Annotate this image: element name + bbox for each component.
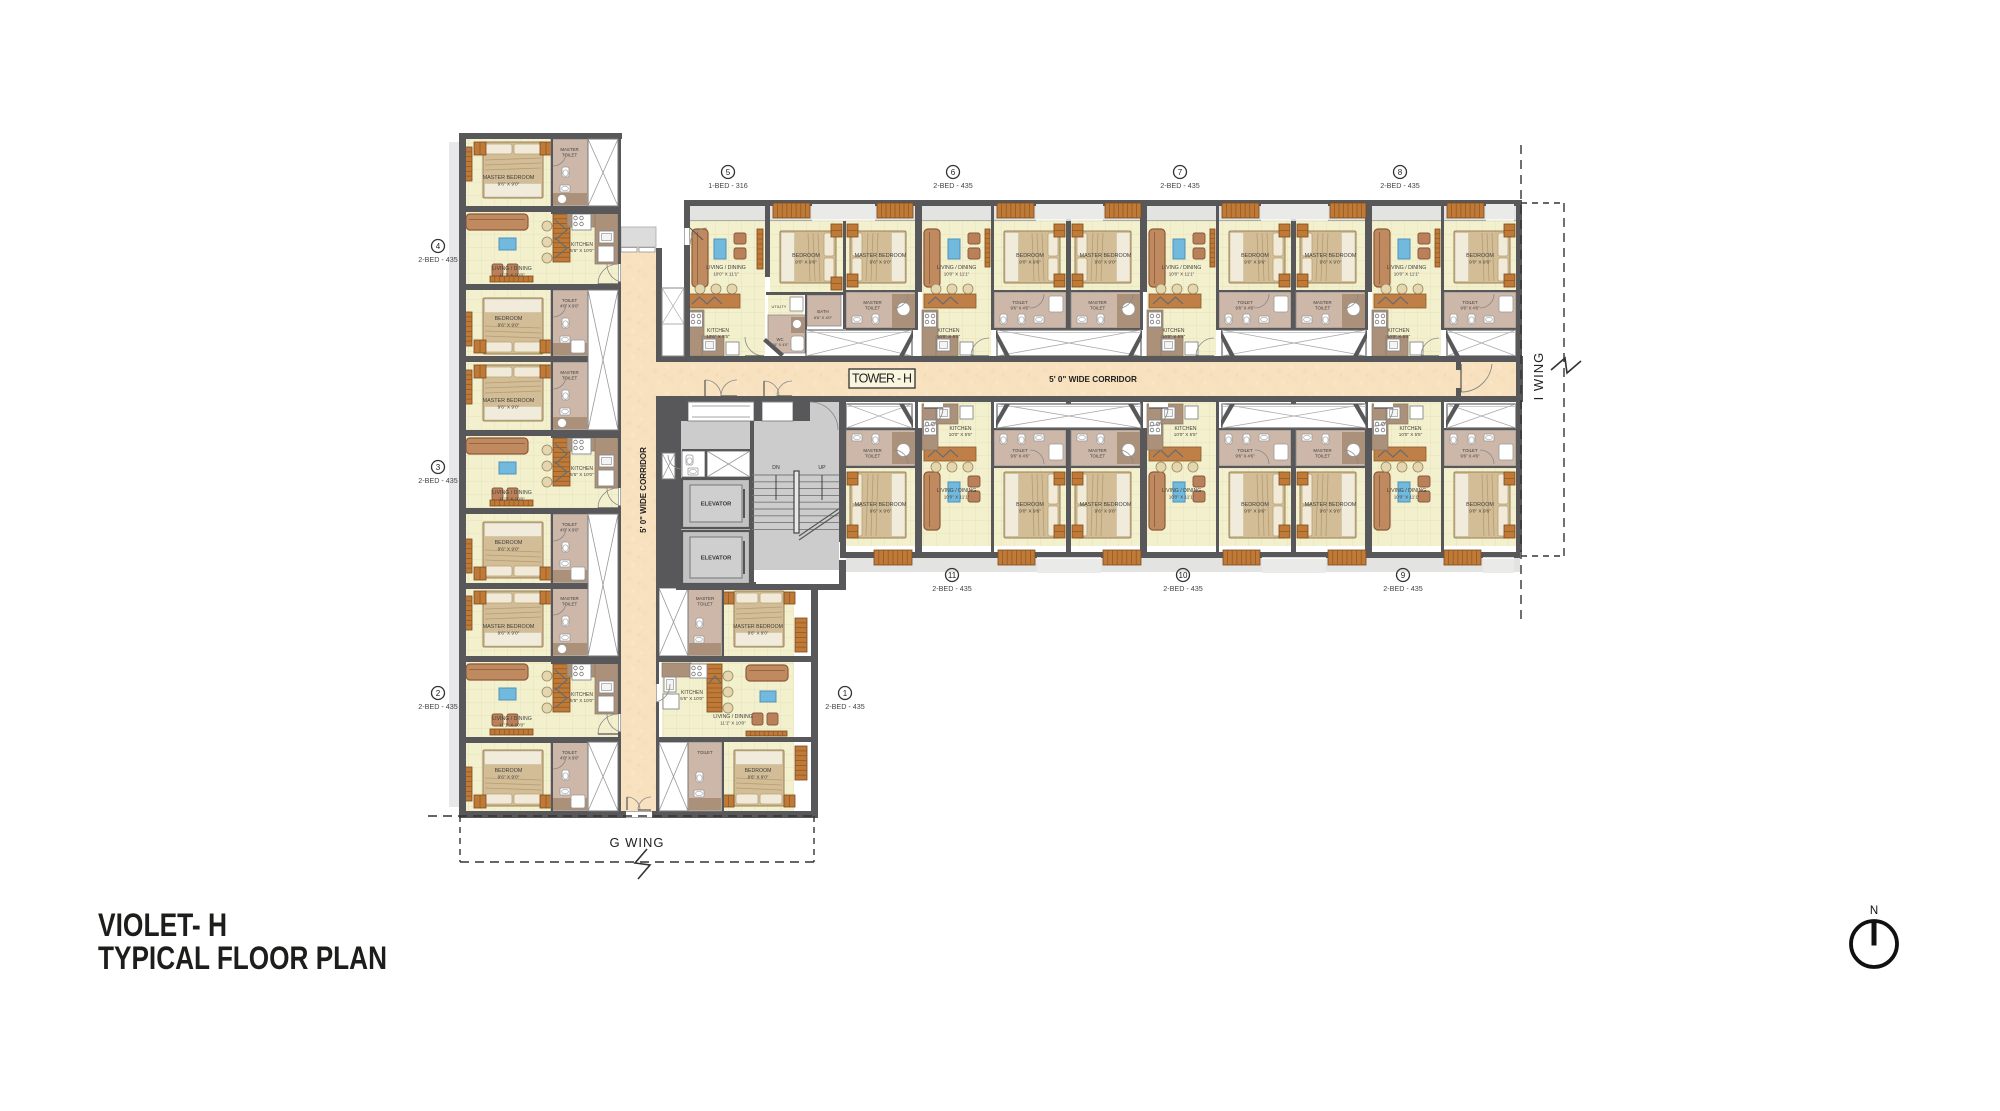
svg-text:TOILET: TOILET — [1462, 300, 1478, 305]
svg-text:10'0" X 11'1": 10'0" X 11'1" — [1169, 272, 1195, 277]
svg-text:BATH: BATH — [817, 309, 828, 314]
svg-text:10'0" X 5'5": 10'0" X 5'5" — [949, 432, 973, 437]
svg-text:9'6" X 9'6": 9'6" X 9'6" — [1320, 509, 1342, 515]
svg-text:9'0" X 9'6": 9'0" X 9'6" — [1244, 260, 1266, 266]
svg-text:9'0" X 9'6": 9'0" X 9'6" — [795, 260, 817, 266]
svg-text:LIVING / DINING: LIVING / DINING — [492, 716, 532, 722]
svg-text:9'0" X 9'6": 9'0" X 9'6" — [1019, 260, 1041, 266]
svg-text:2-BED - 435: 2-BED - 435 — [418, 702, 458, 711]
svg-text:5'5" X 10'0": 5'5" X 10'0" — [570, 472, 594, 477]
svg-text:9'6" X 4'6": 9'6" X 4'6" — [1460, 454, 1480, 459]
svg-text:I WING: I WING — [1531, 352, 1546, 401]
svg-text:TOILET: TOILET — [1237, 300, 1253, 305]
svg-text:BEDROOM: BEDROOM — [1241, 502, 1269, 508]
svg-text:ELEVATOR: ELEVATOR — [701, 502, 732, 508]
svg-text:LIVING / DINING: LIVING / DINING — [713, 714, 753, 720]
svg-text:LIVING / DINING: LIVING / DINING — [937, 488, 977, 494]
svg-text:5'5" X 10'0": 5'5" X 10'0" — [570, 698, 594, 703]
svg-text:9'6" X 4'6": 9'6" X 4'6" — [1010, 454, 1030, 459]
svg-text:2-BED - 435: 2-BED - 435 — [1380, 181, 1420, 190]
svg-text:MASTER BEDROOM: MASTER BEDROOM — [855, 502, 907, 508]
svg-text:9: 9 — [1401, 571, 1406, 580]
svg-text:9'6" X 9'0": 9'6" X 9'0" — [498, 631, 520, 637]
svg-text:MASTER: MASTER — [1088, 300, 1106, 305]
svg-text:TOILET: TOILET — [562, 522, 578, 527]
svg-text:LIVING / DINING: LIVING / DINING — [1387, 265, 1427, 271]
svg-text:BEDROOM: BEDROOM — [1241, 253, 1269, 259]
svg-text:MASTER: MASTER — [863, 300, 881, 305]
svg-text:MASTER BEDROOM: MASTER BEDROOM — [483, 175, 535, 181]
svg-text:2-BED - 435: 2-BED - 435 — [933, 181, 973, 190]
svg-text:TYPICAL FLOOR PLAN: TYPICAL FLOOR PLAN — [98, 940, 387, 976]
svg-text:7: 7 — [1178, 168, 1183, 177]
svg-text:MASTER BEDROOM: MASTER BEDROOM — [1080, 253, 1132, 259]
svg-text:TOILET: TOILET — [562, 750, 578, 755]
svg-text:MASTER: MASTER — [1313, 300, 1331, 305]
svg-text:TOILET: TOILET — [865, 306, 881, 311]
svg-text:9'0" X 9'6": 9'0" X 9'6" — [1469, 260, 1491, 266]
svg-text:10'0" X 5'5": 10'0" X 5'5" — [1399, 432, 1423, 437]
svg-text:TOILET: TOILET — [562, 298, 578, 303]
svg-text:5: 5 — [726, 168, 731, 177]
svg-text:11: 11 — [948, 571, 957, 580]
svg-text:9'6" X 9'0": 9'6" X 9'0" — [748, 631, 769, 636]
svg-text:3: 3 — [436, 463, 441, 472]
svg-text:6: 6 — [951, 168, 956, 177]
svg-text:10'0" X 5'5": 10'0" X 5'5" — [937, 334, 961, 339]
svg-text:9'6" X 9'0": 9'6" X 9'0" — [498, 405, 520, 411]
svg-text:LIVING / DINING: LIVING / DINING — [1162, 488, 1202, 494]
svg-text:TOILET: TOILET — [697, 750, 713, 755]
svg-text:10'0" X 5'5": 10'0" X 5'5" — [1162, 334, 1186, 339]
svg-text:BEDROOM: BEDROOM — [745, 768, 772, 774]
svg-text:2-BED - 435: 2-BED - 435 — [418, 476, 458, 485]
svg-text:UP: UP — [818, 465, 826, 471]
svg-text:VIOLET- H: VIOLET- H — [98, 907, 227, 943]
svg-text:MASTER: MASTER — [1088, 448, 1106, 453]
svg-text:11'1" X 10'0": 11'1" X 10'0" — [499, 497, 525, 502]
svg-text:2-BED - 435: 2-BED - 435 — [932, 584, 972, 593]
svg-text:5'5" X 10'0": 5'5" X 10'0" — [570, 248, 594, 253]
svg-text:2: 2 — [436, 689, 441, 698]
svg-text:TOILET: TOILET — [562, 376, 578, 381]
svg-text:MASTER: MASTER — [863, 448, 881, 453]
svg-text:9'6" X 4'6": 9'6" X 4'6" — [1460, 306, 1480, 311]
svg-text:TOILET: TOILET — [1237, 448, 1253, 453]
svg-text:TOILET: TOILET — [1012, 300, 1028, 305]
svg-text:9'6" X 9'0": 9'6" X 9'0" — [748, 775, 769, 780]
svg-text:9'0" X 9'6": 9'0" X 9'6" — [1469, 509, 1491, 515]
svg-text:9'6" X 9'0": 9'6" X 9'0" — [870, 260, 892, 266]
svg-text:TOWER - H: TOWER - H — [852, 372, 912, 386]
svg-text:5'5" X 10'0": 5'5" X 10'0" — [680, 696, 704, 701]
svg-text:9'6" X 9'0": 9'6" X 9'0" — [498, 775, 520, 781]
svg-text:MASTER BEDROOM: MASTER BEDROOM — [483, 398, 535, 404]
svg-text:9'6" X 9'6": 9'6" X 9'6" — [1095, 509, 1117, 515]
svg-text:BEDROOM: BEDROOM — [1466, 502, 1494, 508]
svg-text:10'0" X 11'1": 10'0" X 11'1" — [944, 272, 970, 277]
svg-text:G WING: G WING — [609, 835, 664, 850]
svg-text:5' 0" WIDE CORRIDOR: 5' 0" WIDE CORRIDOR — [639, 447, 648, 533]
svg-text:10: 10 — [1179, 571, 1188, 580]
svg-text:2-BED - 435: 2-BED - 435 — [418, 255, 458, 264]
svg-text:TOILET: TOILET — [1090, 306, 1106, 311]
svg-text:1: 1 — [843, 689, 848, 698]
svg-text:10'0" X 5'5": 10'0" X 5'5" — [706, 334, 730, 339]
svg-text:10'0" X 11'1": 10'0" X 11'1" — [713, 272, 739, 277]
svg-text:MASTER: MASTER — [560, 147, 578, 152]
svg-text:8: 8 — [1398, 168, 1403, 177]
svg-text:LIVING / DINING: LIVING / DINING — [492, 266, 532, 272]
svg-text:MASTER BEDROOM: MASTER BEDROOM — [855, 253, 907, 259]
svg-text:LIVING / DINING: LIVING / DINING — [492, 490, 532, 496]
svg-text:BEDROOM: BEDROOM — [1466, 253, 1494, 259]
svg-text:BEDROOM: BEDROOM — [495, 768, 523, 774]
svg-text:MASTER: MASTER — [560, 370, 578, 375]
svg-text:TOILET: TOILET — [1315, 454, 1331, 459]
svg-text:TOILET: TOILET — [1012, 448, 1028, 453]
svg-text:9'0" X 9'6": 9'0" X 9'6" — [1019, 509, 1041, 515]
svg-text:MASTER: MASTER — [696, 596, 714, 601]
svg-text:4: 4 — [436, 242, 441, 251]
svg-text:MASTER: MASTER — [560, 596, 578, 601]
svg-text:9'6" X 9'0": 9'6" X 9'0" — [498, 323, 520, 329]
svg-text:4'0" X 9'0": 4'0" X 9'0" — [560, 304, 580, 309]
svg-text:LIVING / DINING: LIVING / DINING — [706, 265, 746, 271]
svg-text:MASTER: MASTER — [1313, 448, 1331, 453]
svg-text:BEDROOM: BEDROOM — [495, 316, 523, 322]
svg-text:LIVING / DINING: LIVING / DINING — [1162, 265, 1202, 271]
svg-text:9'6" X 9'0": 9'6" X 9'0" — [498, 547, 520, 553]
svg-text:TOILET: TOILET — [865, 454, 881, 459]
svg-text:2-BED - 435: 2-BED - 435 — [1163, 584, 1203, 593]
svg-text:2-BED - 435: 2-BED - 435 — [825, 702, 865, 711]
svg-text:BEDROOM: BEDROOM — [792, 253, 820, 259]
svg-text:10'0" X 11'1": 10'0" X 11'1" — [1394, 495, 1420, 500]
svg-text:2-BED - 435: 2-BED - 435 — [1160, 181, 1200, 190]
svg-text:LIVING / DINING: LIVING / DINING — [937, 265, 977, 271]
svg-text:TOILET: TOILET — [1090, 454, 1106, 459]
svg-text:TOILET: TOILET — [562, 602, 578, 607]
svg-text:4'0" X 9'0": 4'0" X 9'0" — [560, 528, 580, 533]
svg-text:WC: WC — [777, 337, 784, 342]
svg-text:9'6" X 4'6": 9'6" X 4'6" — [1010, 306, 1030, 311]
svg-text:11'1" X 10'0": 11'1" X 10'0" — [720, 721, 746, 726]
svg-text:11'1" X 10'0": 11'1" X 10'0" — [499, 273, 525, 278]
svg-text:1-BED - 316: 1-BED - 316 — [708, 181, 748, 190]
svg-text:10'0" X 11'1": 10'0" X 11'1" — [944, 495, 970, 500]
svg-text:MASTER BEDROOM: MASTER BEDROOM — [1305, 502, 1357, 508]
svg-text:ELEVATOR: ELEVATOR — [701, 556, 732, 562]
svg-text:9'6" X 9'0": 9'6" X 9'0" — [1095, 260, 1117, 266]
svg-text:9'6" X 9'0": 9'6" X 9'0" — [1320, 260, 1342, 266]
svg-text:9'6" X 4'6": 9'6" X 4'6" — [1235, 454, 1255, 459]
svg-text:TOILET: TOILET — [562, 153, 578, 158]
svg-text:5' 0" WIDE CORRIDOR: 5' 0" WIDE CORRIDOR — [1049, 375, 1137, 384]
svg-text:MASTER BEDROOM: MASTER BEDROOM — [1305, 253, 1357, 259]
svg-text:6'6" X 4'0": 6'6" X 4'0" — [814, 315, 833, 320]
svg-text:TOILET: TOILET — [1462, 448, 1478, 453]
svg-text:LIVING / DINING: LIVING / DINING — [1387, 488, 1427, 494]
svg-text:BEDROOM: BEDROOM — [1016, 253, 1044, 259]
svg-text:N: N — [1870, 905, 1878, 917]
svg-text:9'0" X 9'6": 9'0" X 9'6" — [1244, 509, 1266, 515]
svg-text:2-BED - 435: 2-BED - 435 — [1383, 584, 1423, 593]
svg-text:MASTER BEDROOM: MASTER BEDROOM — [483, 624, 535, 630]
svg-text:9'6" X 9'6": 9'6" X 9'6" — [870, 509, 892, 515]
svg-text:UTILITY: UTILITY — [772, 304, 787, 309]
svg-text:BEDROOM: BEDROOM — [495, 540, 523, 546]
svg-text:10'0" X 11'1": 10'0" X 11'1" — [1169, 495, 1195, 500]
svg-text:10'0" X 11'1": 10'0" X 11'1" — [1394, 272, 1420, 277]
svg-text:4'0" X 9'0": 4'0" X 9'0" — [560, 756, 580, 761]
svg-text:10'0" X 5'5": 10'0" X 5'5" — [1174, 432, 1198, 437]
svg-text:TOILET: TOILET — [697, 602, 713, 607]
svg-text:MASTER BEDROOM: MASTER BEDROOM — [733, 624, 783, 630]
svg-text:9'6" X 9'0": 9'6" X 9'0" — [498, 182, 520, 188]
svg-text:MASTER BEDROOM: MASTER BEDROOM — [1080, 502, 1132, 508]
svg-text:DN: DN — [772, 465, 780, 471]
svg-text:11'1" X 10'0": 11'1" X 10'0" — [499, 723, 525, 728]
svg-text:10'0" X 5'5": 10'0" X 5'5" — [1387, 334, 1411, 339]
svg-text:TOILET: TOILET — [1315, 306, 1331, 311]
svg-text:9'6" X 4'6": 9'6" X 4'6" — [1235, 306, 1255, 311]
svg-text:BEDROOM: BEDROOM — [1016, 502, 1044, 508]
